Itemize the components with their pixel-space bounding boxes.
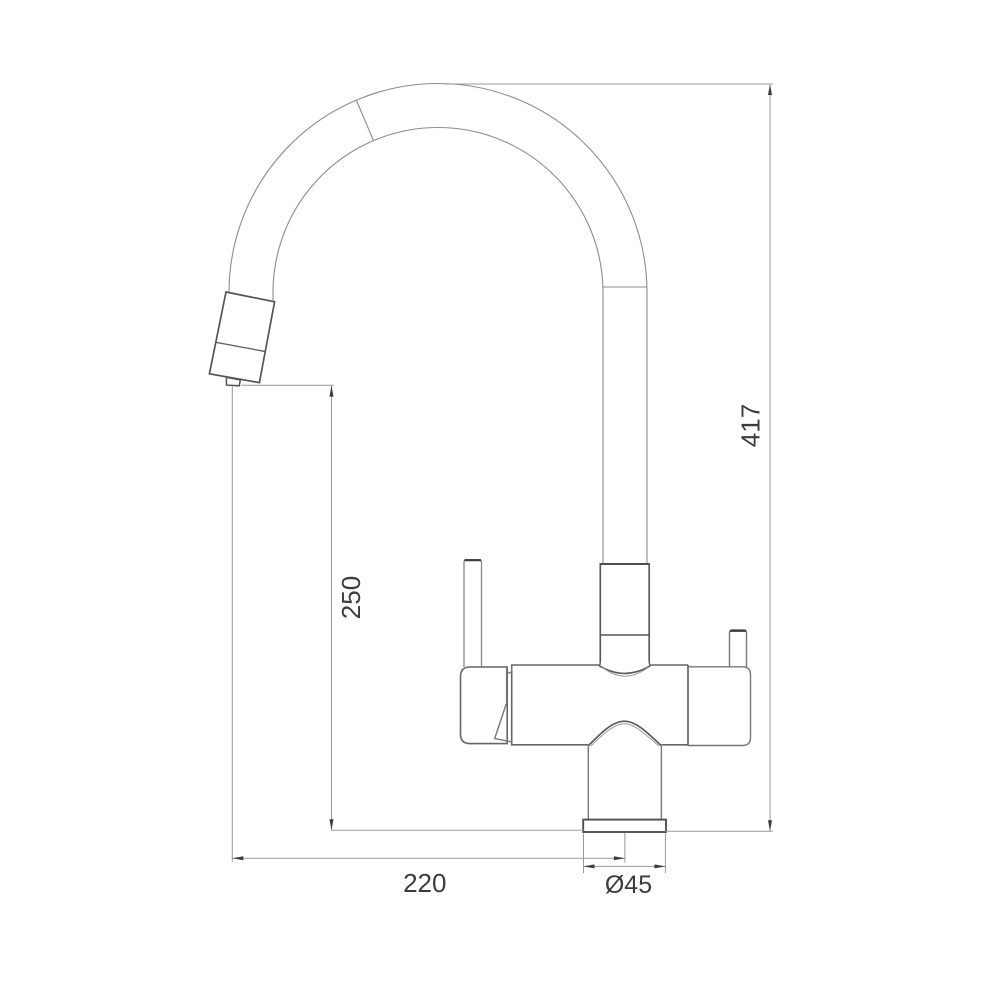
svg-text:417: 417 — [736, 404, 766, 447]
svg-text:220: 220 — [403, 868, 446, 898]
svg-text:250: 250 — [336, 576, 366, 619]
svg-text:Ø45: Ø45 — [605, 871, 652, 899]
